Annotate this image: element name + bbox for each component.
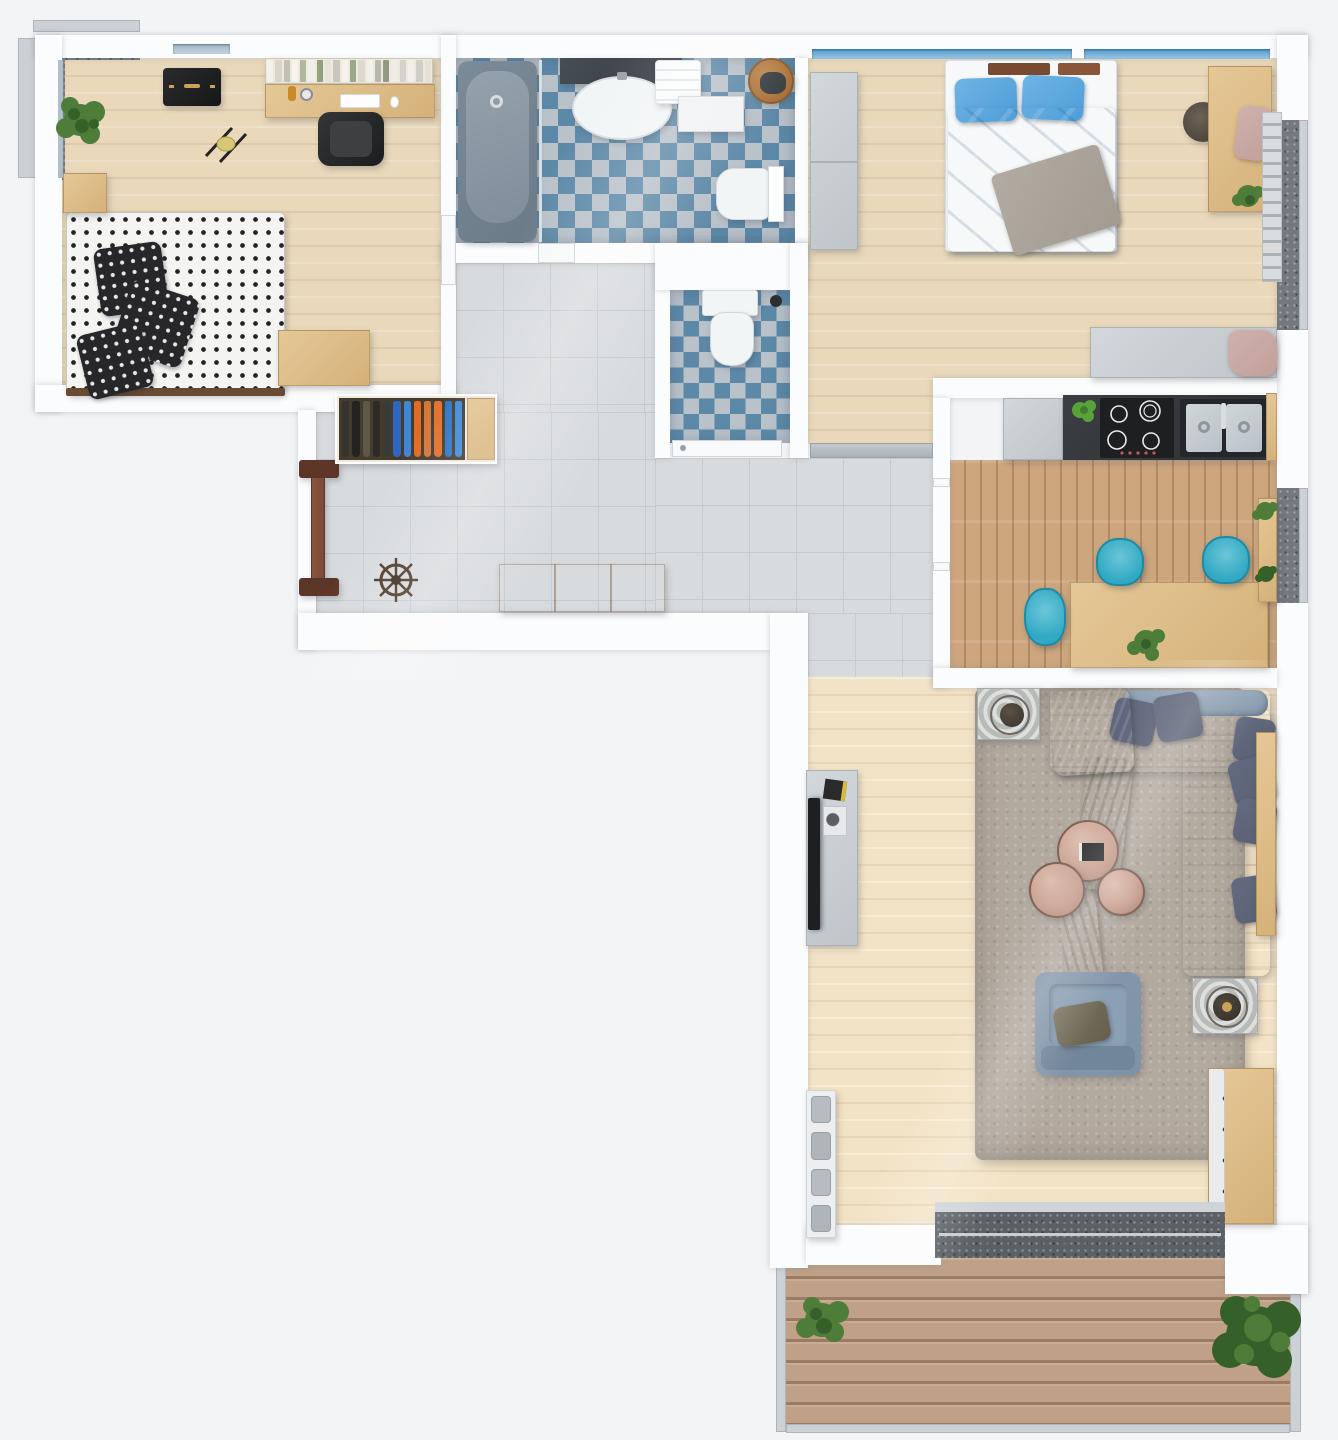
- shelf-pads-item: [811, 1096, 831, 1123]
- kitchen-door-jamb-b: [933, 562, 950, 571]
- floor-plan-canvas: [0, 0, 1338, 1440]
- bath-toilet-tank: [768, 166, 784, 222]
- french-balcony-kitchen-rail: [1299, 488, 1308, 603]
- wardrobe-clothes-item: [445, 401, 452, 457]
- chest-latch-l: [169, 85, 174, 88]
- kitchen-herb-plant: [1068, 396, 1100, 424]
- wall-wc-left: [655, 263, 670, 458]
- wall-bath-right: [795, 58, 808, 243]
- kids-black-chest: [163, 68, 221, 106]
- wall-kitchen-left: [933, 398, 950, 688]
- bathtub-basin: [466, 71, 529, 223]
- basket-towel: [760, 72, 786, 94]
- wardrobe-clothes-item: [393, 401, 400, 457]
- bookshelf-books-item: [391, 60, 397, 82]
- shelf-pads-item: [811, 1169, 831, 1196]
- kids-office-chair: [318, 112, 384, 166]
- bedroom-top-window-2: [1084, 49, 1270, 59]
- rocking-toy: [202, 118, 250, 166]
- bathtub-drain: [490, 95, 503, 108]
- armchair-back: [1041, 1046, 1135, 1070]
- bedroom-top-window: [812, 49, 1072, 59]
- shelf-plant-top: [1250, 496, 1280, 526]
- terrace-bush-right: [1200, 1276, 1312, 1398]
- bookshelf-books: [266, 59, 432, 83]
- bookshelf-books-item: [292, 60, 298, 82]
- shelf-pads-item: [811, 1205, 831, 1232]
- bookshelf-books-item: [342, 60, 348, 82]
- coffee-table-small: [1097, 868, 1145, 916]
- wardrobe-clothes-item: [414, 401, 421, 457]
- sink-faucet: [1221, 403, 1226, 429]
- terrace-sill: [935, 1202, 1225, 1212]
- wall-wc-right: [790, 243, 808, 458]
- hallway-floor-d: [808, 613, 935, 679]
- wc-door: [672, 440, 782, 457]
- vanity-faucet: [617, 72, 627, 80]
- bookshelf-books-item: [317, 60, 323, 82]
- sofa-pillow-2: [1151, 690, 1204, 743]
- wardrobe-clothes-item: [363, 401, 370, 457]
- bookshelf-books-item: [383, 60, 389, 82]
- bookshelf-books-item: [400, 60, 406, 82]
- wardrobe-split: [811, 161, 857, 163]
- dining-chair-3: [1024, 588, 1066, 646]
- side-table-b-candle: [1222, 1002, 1232, 1012]
- terrace-rail-bottom: [786, 1424, 1290, 1433]
- wardrobe-clothes-item: [342, 401, 349, 457]
- hall-wardrobe-clothes: [339, 398, 465, 460]
- bookshelf-books-item: [325, 60, 331, 82]
- wall-living-left: [770, 613, 808, 1268]
- french-balcony-bedroom-rail: [1299, 120, 1308, 330]
- bookshelf-books-item: [300, 60, 306, 82]
- bed-headboard-decor-1: [988, 63, 1050, 75]
- entrance-door-leaf: [311, 477, 325, 579]
- bookshelf-books-item: [416, 60, 422, 82]
- wardrobe-clothes-item: [424, 401, 431, 457]
- terrace-sliding-door: [935, 1212, 1225, 1258]
- sliding-door-track: [939, 1233, 1221, 1236]
- sink-drain-right: [1238, 421, 1250, 433]
- hallway-floor-a: [456, 263, 655, 412]
- kids-nightstand: [63, 173, 107, 213]
- ship-wheel-decor: [372, 556, 420, 604]
- dining-table-plant: [1122, 616, 1170, 668]
- bath-cabinet: [678, 96, 744, 132]
- kidsroom-top-window: [173, 44, 230, 54]
- living-dresser: [1208, 1068, 1274, 1224]
- bookshelf-books-item: [375, 60, 381, 82]
- bookshelf-books-item: [275, 60, 281, 82]
- tv-stand-photo: [823, 806, 847, 836]
- wall-hall-bottom: [298, 613, 772, 650]
- chair-seat: [330, 121, 372, 157]
- shower-glass: [539, 60, 542, 242]
- sink-drain-left: [1198, 421, 1210, 433]
- desk-bottle: [288, 86, 296, 101]
- bookshelf-books-item: [284, 60, 290, 82]
- balcony-tl-rail-top: [33, 20, 140, 32]
- wardrobe-clothes-item: [383, 401, 390, 457]
- side-table-a-bowl: [1000, 703, 1024, 727]
- wall-kitchen-bottom: [933, 668, 1277, 688]
- towel-rack: [1262, 112, 1282, 282]
- kitchen-counter-wood-end: [1266, 393, 1277, 461]
- shelf-plant-bottom: [1252, 560, 1280, 588]
- shelf-pads: [807, 1091, 835, 1237]
- dining-chair-1: [1096, 538, 1144, 586]
- bookshelf-books-item: [333, 60, 339, 82]
- wardrobe-clothes-item: [434, 401, 441, 457]
- bookshelf-books-item: [425, 60, 431, 82]
- hall-bench: [499, 564, 665, 612]
- wardrobe-clothes-item: [404, 401, 411, 457]
- wardrobe-clothes-item: [455, 401, 462, 457]
- living-shelf-pads: [806, 1090, 836, 1238]
- laundry-basket: [748, 58, 794, 104]
- entrance-door-frame-top: [299, 460, 339, 478]
- wall-wc-top: [655, 243, 808, 290]
- bathtub: [458, 61, 537, 242]
- bookshelf-books-item: [358, 60, 364, 82]
- cooktop: [1100, 398, 1174, 458]
- bathroom-door: [538, 243, 575, 263]
- kids-bench: [278, 330, 370, 386]
- kitchen-cabinet-white: [1003, 398, 1063, 460]
- french-balcony-kitchen-floor: [1277, 488, 1299, 603]
- wc-toilet-bowl: [710, 312, 754, 366]
- shelf-pads-item: [811, 1132, 831, 1159]
- wc-door-handle: [680, 445, 686, 451]
- kidsroom-door: [441, 215, 456, 285]
- terrace-bush-left: [790, 1288, 860, 1354]
- kitchen-door-jamb-a: [933, 478, 950, 487]
- bookshelf-books-item: [308, 60, 314, 82]
- living-sideboard: [1256, 732, 1276, 936]
- coffee-table-medium: [1029, 862, 1085, 918]
- desk-clock: [300, 88, 313, 101]
- desk-keyboard: [340, 94, 380, 108]
- chest-handle: [184, 84, 200, 88]
- tv-stand-book: [823, 779, 848, 802]
- hallway-floor-c: [655, 458, 935, 613]
- side-table-b: [1192, 978, 1258, 1034]
- dresser-towels-pink: [1228, 330, 1277, 376]
- bedroom-wardrobe: [810, 72, 858, 250]
- kitchen-sink-unit: [1180, 399, 1268, 457]
- entrance-door-frame-bottom: [299, 578, 339, 596]
- bath-toilet-bowl: [716, 168, 770, 220]
- terrace-rail-left: [776, 1256, 786, 1432]
- bed-headboard-decor-2: [1058, 63, 1100, 75]
- bookshelf-books-item: [350, 60, 356, 82]
- tv: [808, 798, 820, 930]
- side-table-a: [977, 688, 1040, 740]
- hall-wardrobe: [335, 394, 497, 464]
- coffee-table-book: [1079, 843, 1104, 861]
- bedroom-floor-ext: [808, 378, 933, 444]
- dining-chair-2: [1202, 536, 1250, 584]
- bookshelf-books-item: [367, 60, 373, 82]
- bookshelf-books-item: [267, 60, 273, 82]
- wardrobe-clothes-item: [352, 401, 359, 457]
- hall-wardrobe-interior: [339, 398, 465, 460]
- kids-plant: [50, 90, 114, 156]
- chest-latch-r: [210, 85, 215, 88]
- wardrobe-clothes-item: [373, 401, 380, 457]
- wc-shelf-item: [770, 295, 782, 307]
- bookshelf-books-item: [408, 60, 414, 82]
- kids-bookshelf: [265, 58, 433, 84]
- cooktop-burners: [1100, 398, 1174, 458]
- bedroom-sliding-door: [810, 443, 933, 458]
- desk-mouse: [390, 96, 399, 108]
- hall-wardrobe-shelf: [467, 398, 495, 460]
- armchair: [1035, 972, 1141, 1076]
